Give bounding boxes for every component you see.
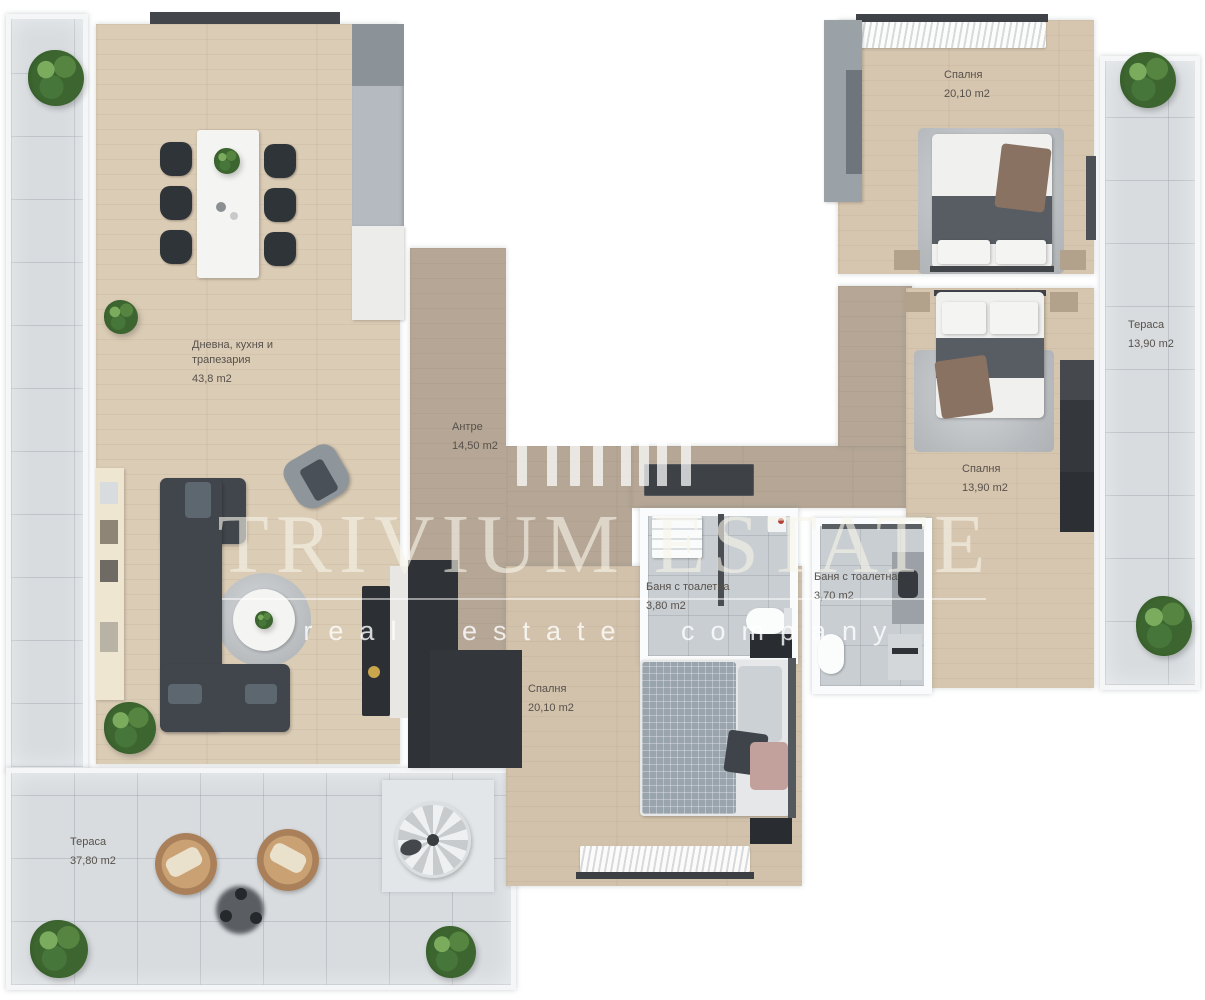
kitchen-fridge xyxy=(352,24,404,86)
terrace-left-floor xyxy=(6,14,88,772)
room-name: Тераса xyxy=(70,835,116,850)
room-name: Спалня xyxy=(528,682,574,697)
room-area: 20,10 m2 xyxy=(528,701,574,716)
sofa-pillow xyxy=(245,684,277,704)
plant-terrace-bottom-center xyxy=(426,926,476,978)
nightstand xyxy=(1060,250,1086,270)
closet-dark xyxy=(1060,360,1094,532)
room-area: 14,50 m2 xyxy=(452,439,498,454)
room-label-antre: Антре 14,50 m2 xyxy=(452,420,498,454)
dining-chair xyxy=(160,186,192,220)
dining-plate xyxy=(230,212,238,220)
room-area: 3,70 m2 xyxy=(814,589,898,604)
shower-tray xyxy=(888,634,922,680)
room-name: Антре xyxy=(452,420,498,435)
hallway-floor-center xyxy=(506,446,632,566)
bed-top-pillow xyxy=(938,240,990,264)
room-area: 13,90 m2 xyxy=(1128,337,1174,352)
dining-centerpiece-plant xyxy=(214,148,240,174)
room-area: 37,80 m2 xyxy=(70,854,116,869)
hall-cabinet xyxy=(644,464,754,496)
plant-terrace-bottom-left xyxy=(30,920,88,978)
bed-bottom-headboard xyxy=(788,658,796,818)
room-label-bath-left: Баня с тоалетна 3,80 m2 xyxy=(646,580,730,614)
room-name: Спалня xyxy=(962,462,1008,477)
curtain xyxy=(860,22,1046,48)
shelf-item xyxy=(100,560,118,582)
room-area: 13,90 m2 xyxy=(962,481,1008,496)
room-area: 3,80 m2 xyxy=(646,599,730,614)
plant-terrace-right-bottom xyxy=(1136,596,1192,656)
dining-chair xyxy=(264,232,296,266)
coffee-table-plant xyxy=(255,611,273,629)
shelf-item xyxy=(100,622,118,652)
room-label-bedroom-mid: Спалня 13,90 m2 xyxy=(962,462,1008,496)
plant-terrace-top-right xyxy=(1120,52,1176,108)
toilet-tank xyxy=(784,608,792,634)
kitchen-island xyxy=(352,226,404,320)
shelf-item xyxy=(100,520,118,544)
sofa-pillow xyxy=(168,684,202,704)
room-name: Спалня xyxy=(944,68,990,83)
curtain-rail xyxy=(576,872,754,879)
bath-accessory-red xyxy=(778,518,784,524)
dining-chair xyxy=(264,144,296,178)
dining-chair xyxy=(160,230,192,264)
sink xyxy=(898,570,918,598)
wardrobe-gray-door xyxy=(846,70,862,174)
room-label-living: Дневна, кухня и трапезария 43,8 m2 xyxy=(192,338,284,387)
table-leg xyxy=(235,888,247,900)
table-leg xyxy=(220,910,232,922)
media-wall xyxy=(390,566,408,718)
decor-gold-bowl xyxy=(368,666,380,678)
nightstand xyxy=(894,250,920,270)
room-area: 43,8 m2 xyxy=(192,372,284,387)
toilet xyxy=(746,608,786,634)
bed-top-throw xyxy=(994,143,1051,213)
room-label-terrace-bottom: Тераса 37,80 m2 xyxy=(70,835,116,869)
room-label-terrace-right: Тераса 13,90 m2 xyxy=(1128,318,1174,352)
hallway-floor-north xyxy=(838,286,912,446)
room-name: Дневна, кухня и трапезария xyxy=(192,338,284,368)
shower-faucet xyxy=(892,648,918,654)
curtain xyxy=(580,846,750,872)
bed-bottom-pillow-pink xyxy=(750,742,788,790)
floor-plan: Дневна, кухня и трапезария 43,8 m2 Антре… xyxy=(0,0,1205,1000)
window-right xyxy=(1086,156,1096,240)
dining-chair xyxy=(160,142,192,176)
shelf-item xyxy=(100,482,118,504)
nightstand xyxy=(750,634,792,658)
room-name: Баня с тоалетна xyxy=(814,570,898,585)
bed-mid-throw xyxy=(934,355,994,420)
shower-glass xyxy=(822,524,922,529)
room-area: 20,10 m2 xyxy=(944,87,990,102)
window-top xyxy=(150,12,340,24)
wardrobe-dark xyxy=(430,650,522,768)
bed-bottom-blanket xyxy=(642,662,736,814)
nightstand xyxy=(904,292,930,312)
bed-mid-pillow xyxy=(990,302,1038,334)
dining-plate xyxy=(216,202,226,212)
staircase-center-post xyxy=(427,834,439,846)
towel-shelf xyxy=(652,516,702,558)
room-label-bedroom-top: Спалня 20,10 m2 xyxy=(944,68,990,102)
bed-top-headboard xyxy=(930,266,1054,272)
tv-console xyxy=(362,586,390,716)
room-name: Баня с тоалетна xyxy=(646,580,730,595)
nightstand xyxy=(750,818,792,844)
plant-shelf xyxy=(104,300,138,334)
toilet xyxy=(818,634,844,674)
room-name: Тераса xyxy=(1128,318,1174,333)
room-label-bath-right: Баня с тоалетна 3,70 m2 xyxy=(814,570,898,604)
table-leg xyxy=(250,912,262,924)
bed-bottom-pillow-light xyxy=(738,666,782,742)
bed-top-pillow xyxy=(996,240,1046,264)
plant-terrace-top-left xyxy=(28,50,84,106)
nightstand xyxy=(1050,292,1078,312)
sofa-pillow xyxy=(185,482,211,518)
dining-chair xyxy=(264,188,296,222)
bed-mid-pillow xyxy=(942,302,986,334)
terrace-right-floor xyxy=(1100,56,1200,690)
plant-living-room xyxy=(104,702,156,754)
curtain-rail xyxy=(856,14,1048,22)
room-label-bedroom-bottom: Спалня 20,10 m2 xyxy=(528,682,574,716)
